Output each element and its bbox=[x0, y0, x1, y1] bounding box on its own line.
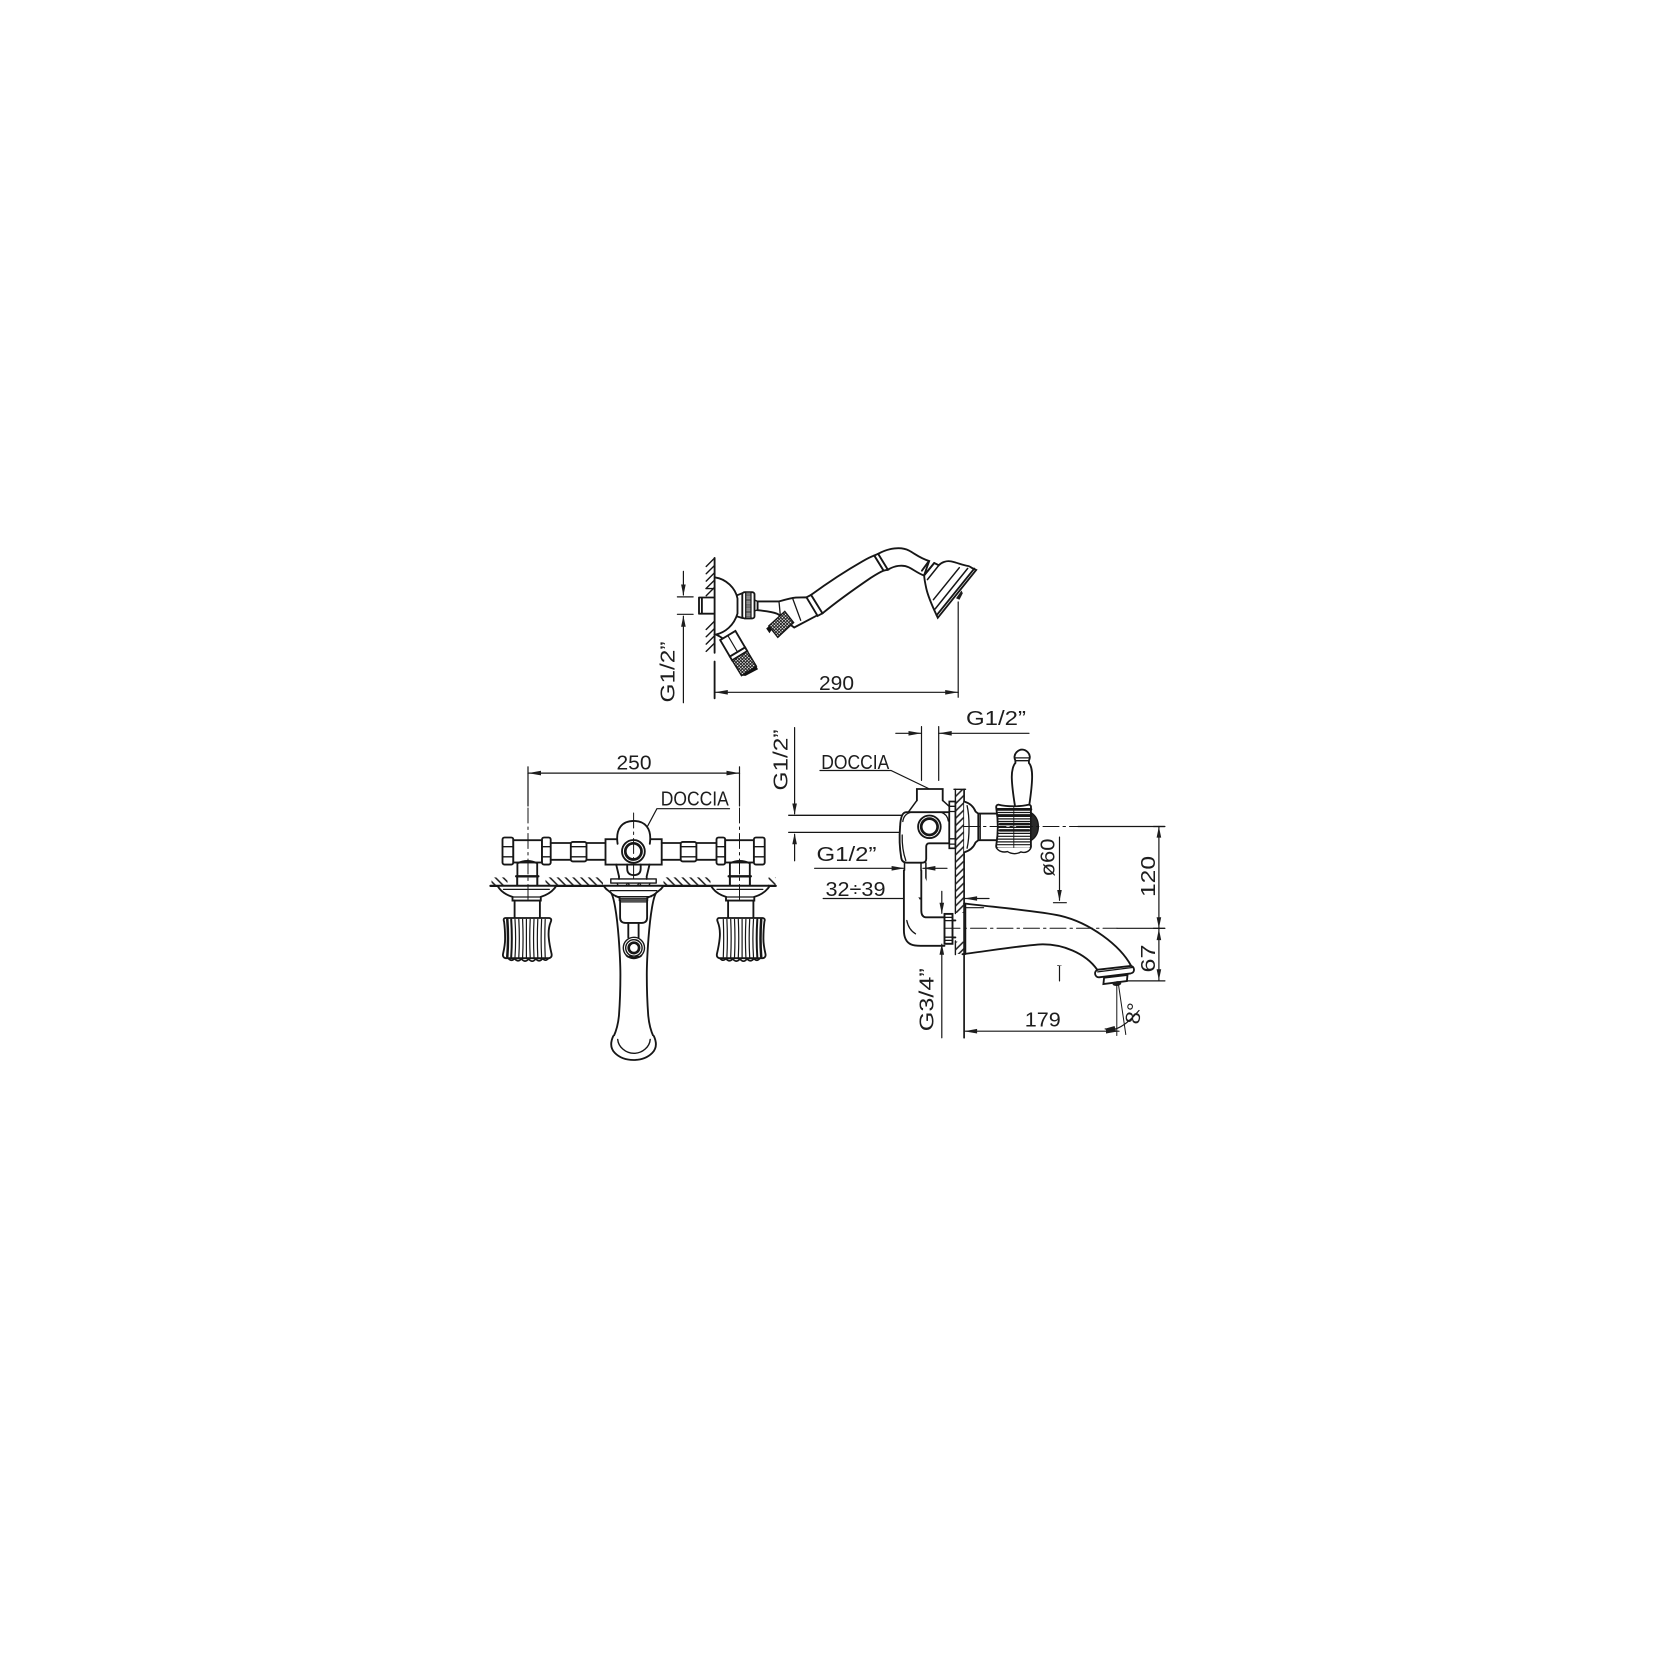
svg-text:67: 67 bbox=[1137, 945, 1160, 973]
svg-text:G3/4”: G3/4” bbox=[916, 968, 939, 1031]
svg-text:179: 179 bbox=[1025, 1009, 1061, 1032]
svg-text:G1/2”: G1/2” bbox=[657, 641, 680, 702]
svg-text:ø60: ø60 bbox=[1037, 839, 1060, 877]
svg-text:G1/2”: G1/2” bbox=[770, 729, 793, 790]
svg-text:32÷39: 32÷39 bbox=[826, 878, 886, 901]
svg-text:8°: 8° bbox=[1121, 1001, 1147, 1025]
svg-text:G1/2”: G1/2” bbox=[817, 843, 877, 866]
svg-text:G1/2”: G1/2” bbox=[966, 707, 1026, 730]
svg-text:DOCCIA: DOCCIA bbox=[661, 787, 729, 810]
svg-text:290: 290 bbox=[819, 672, 854, 695]
svg-text:120: 120 bbox=[1137, 856, 1160, 897]
svg-text:250: 250 bbox=[617, 751, 652, 774]
